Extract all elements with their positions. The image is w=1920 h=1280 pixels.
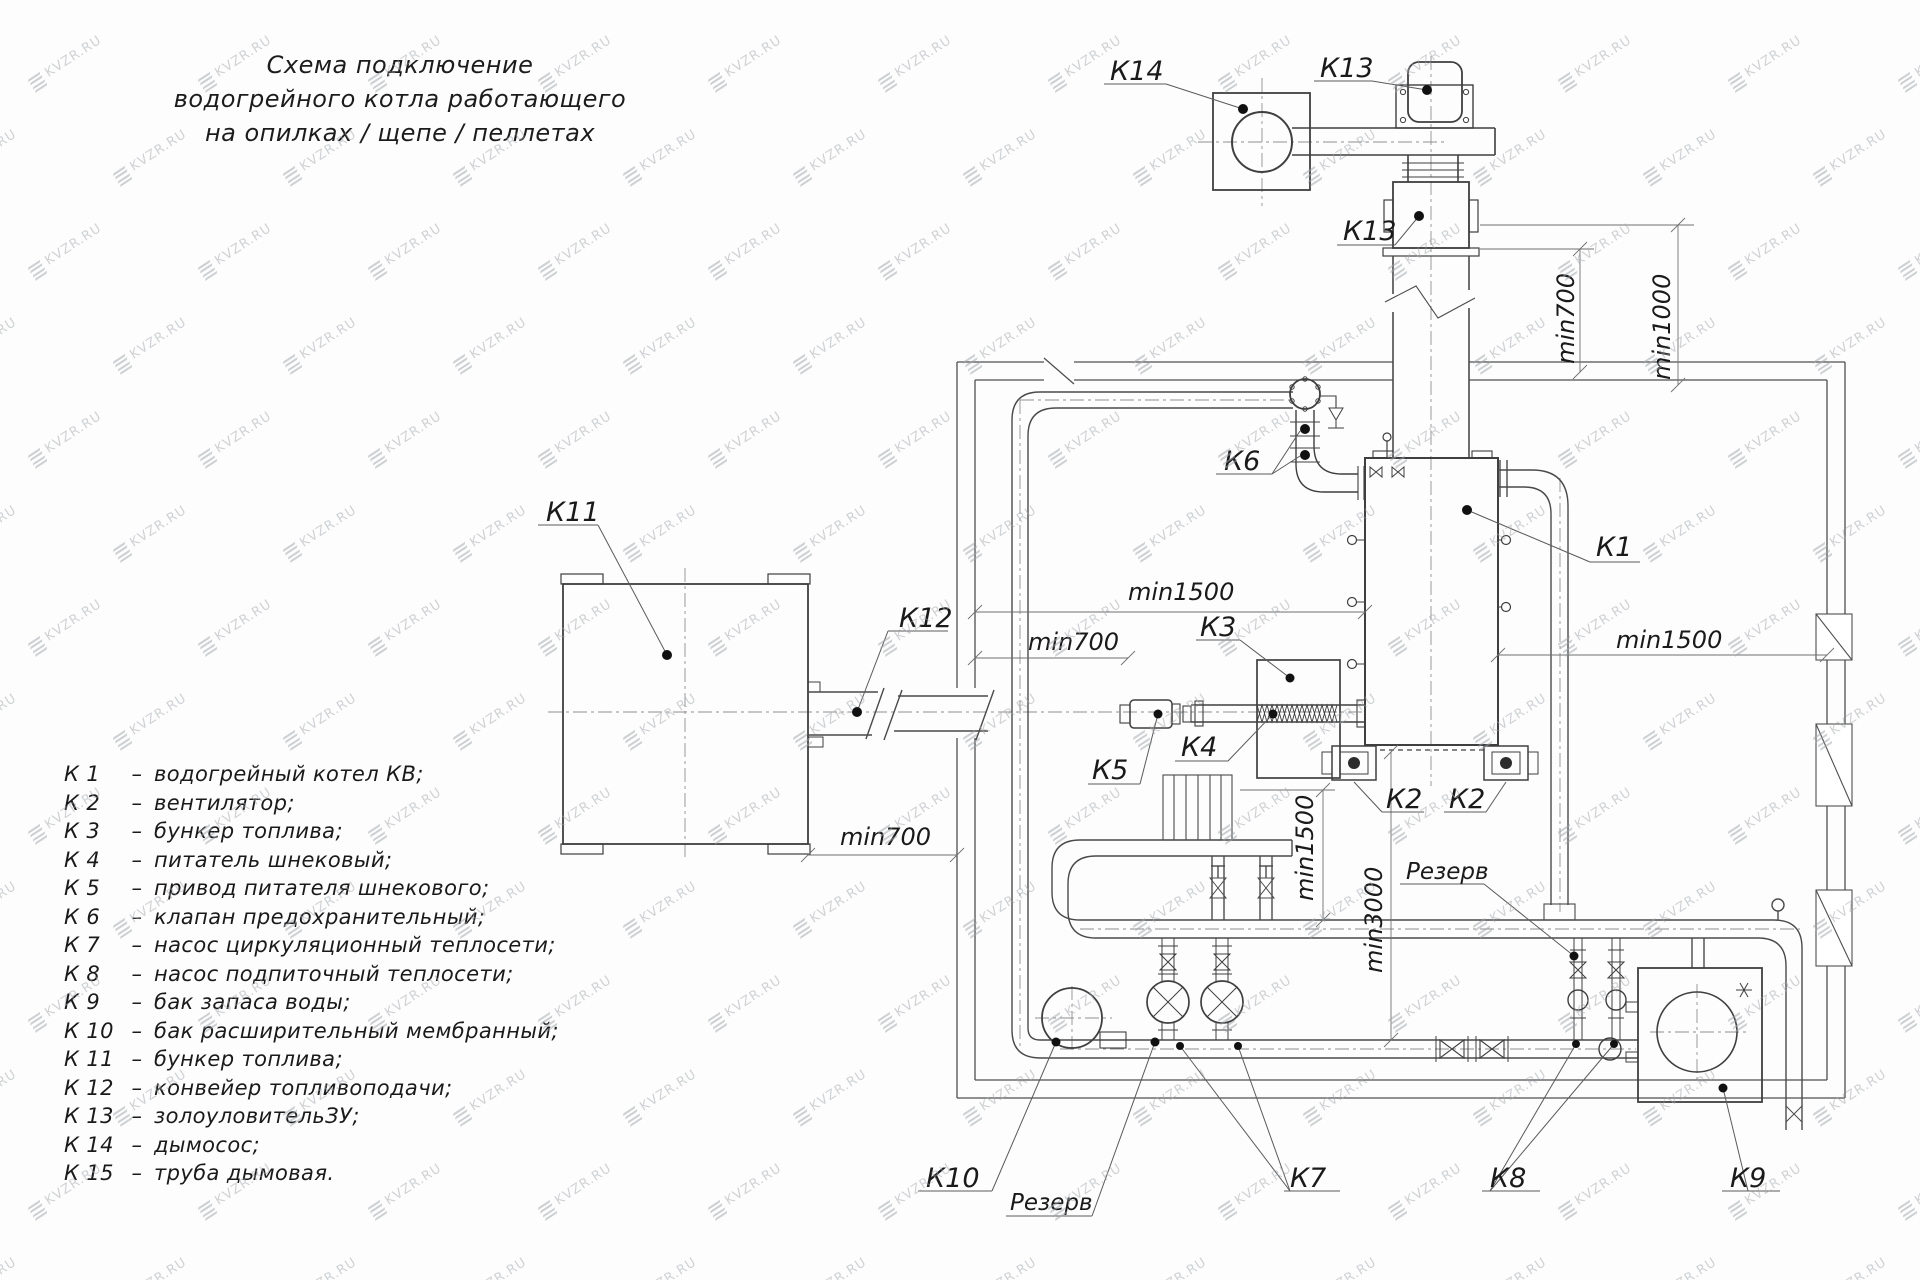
legend-key: К 5 <box>64 876 120 900</box>
legend-key: К 3 <box>64 819 120 843</box>
legend-dash: – <box>120 990 154 1014</box>
legend-desc: привод питателя шнекового; <box>154 876 489 900</box>
legend-desc: насос циркуляционный теплосети; <box>154 933 556 957</box>
legend-key: К 7 <box>64 933 120 957</box>
legend-item-k3: К 3–бункер топлива; <box>64 819 559 848</box>
legend-dash: – <box>120 1161 154 1185</box>
label-k14: К14 <box>1110 56 1164 87</box>
legend-item-k10: К 10–бак расширительный мембранный; <box>64 1019 559 1048</box>
dim-min1000-roof: min1000 <box>1648 274 1676 380</box>
legend-item-k8: К 8–насос подпиточный теплосети; <box>64 962 559 991</box>
screw-feeder-k4 <box>1191 700 1365 727</box>
legend-item-k9: К 9–бак запаса воды; <box>64 990 559 1019</box>
heating-pipes <box>1012 392 1802 1130</box>
legend-item-k13: К 13–золоуловительЗУ; <box>64 1104 559 1133</box>
legend: К 1–водогрейный котел КВ; К 2–вентилятор… <box>64 762 559 1190</box>
legend-key: К 12 <box>64 1076 120 1100</box>
legend-desc: клапан предохранительный; <box>154 905 485 929</box>
wall-openings <box>1816 614 1852 966</box>
drawing-sheet: Схема подключение водогрейного котла раб… <box>0 0 1920 1280</box>
legend-dash: – <box>120 933 154 957</box>
legend-key: К 2 <box>64 791 120 815</box>
legend-desc: дымосос; <box>154 1133 260 1157</box>
legend-item-k7: К 7–насос циркуляционный теплосети; <box>64 933 559 962</box>
dim-min700-left: min700 <box>1028 628 1119 656</box>
legend-desc: питатель шнековый; <box>154 848 392 872</box>
label-k9: К9 <box>1730 1163 1766 1194</box>
label-k6: К6 <box>1224 446 1260 477</box>
dim-min3000: min3000 <box>1360 867 1388 973</box>
legend-desc: насос подпиточный теплосети; <box>154 962 514 986</box>
label-k10: К10 <box>926 1163 980 1194</box>
fuel-bunker-k11 <box>561 574 823 854</box>
leader-lines <box>538 81 1780 1216</box>
legend-dash: – <box>120 1019 154 1043</box>
conveyor-k12 <box>808 688 994 740</box>
legend-desc: труба дымовая. <box>154 1161 334 1185</box>
legend-key: К 8 <box>64 962 120 986</box>
legend-key: К 11 <box>64 1047 120 1071</box>
legend-desc: бак расширительный мембранный; <box>154 1019 559 1043</box>
legend-key: К 13 <box>64 1104 120 1128</box>
legend-dash: – <box>120 876 154 900</box>
legend-item-k4: К 4–питатель шнековый; <box>64 848 559 877</box>
legend-key: К 4 <box>64 848 120 872</box>
legend-key: К 15 <box>64 1161 120 1185</box>
legend-item-k12: К 12–конвейер топливоподачи; <box>64 1076 559 1105</box>
legend-dash: – <box>120 762 154 786</box>
dim-min1500-right: min1500 <box>1616 626 1722 654</box>
legend-dash: – <box>120 848 154 872</box>
label-k13-top: К13 <box>1320 53 1374 84</box>
legend-key: К 10 <box>64 1019 120 1043</box>
legend-desc: бак запаса воды; <box>154 990 351 1014</box>
legend-key: К 6 <box>64 905 120 929</box>
label-k1: К1 <box>1596 532 1632 563</box>
drawing-title: Схема подключение водогрейного котла раб… <box>150 48 650 150</box>
label-k8: К8 <box>1490 1163 1526 1194</box>
legend-dash: – <box>120 791 154 815</box>
legend-dash: – <box>120 1076 154 1100</box>
label-k5: К5 <box>1092 755 1128 786</box>
dim-min700-bunker: min700 <box>840 823 931 851</box>
fan-k2-left <box>1322 746 1376 780</box>
stairs <box>1163 775 1232 840</box>
label-k4: К4 <box>1181 732 1217 763</box>
legend-dash: – <box>120 905 154 929</box>
legend-dash: – <box>120 962 154 986</box>
label-k7: К7 <box>1290 1163 1326 1194</box>
label-rezerv-left: Резерв <box>1010 1190 1093 1216</box>
legend-item-k15: К 15–труба дымовая. <box>64 1161 559 1190</box>
smoke-exhauster-k14 <box>1213 93 1495 190</box>
safety-valve-k6 <box>1290 377 1364 500</box>
legend-item-k1: К 1–водогрейный котел КВ; <box>64 762 559 791</box>
legend-dash: – <box>120 1104 154 1128</box>
title-line-1: Схема подключение <box>150 48 650 82</box>
legend-desc: бункер топлива; <box>154 1047 343 1071</box>
dim-min700-roof: min700 <box>1552 273 1580 364</box>
dim-min1500-left: min1500 <box>1128 578 1234 606</box>
title-line-3: на опилках / щепе / пеллетах <box>150 116 650 150</box>
legend-desc: вентилятор; <box>154 791 295 815</box>
legend-item-k11: К 11–бункер топлива; <box>64 1047 559 1076</box>
legend-key: К 14 <box>64 1133 120 1157</box>
legend-desc: водогрейный котел КВ; <box>154 762 424 786</box>
fan-k2-right <box>1484 746 1538 780</box>
legend-item-k14: К 14–дымосос; <box>64 1133 559 1162</box>
legend-desc: конвейер топливоподачи; <box>154 1076 453 1100</box>
boiler-k1 <box>1348 433 1511 750</box>
dim-min1500-mid: min1500 <box>1291 795 1319 901</box>
legend-desc: бункер топлива; <box>154 819 343 843</box>
label-k12: К12 <box>899 603 953 634</box>
legend-key: К 1 <box>64 762 120 786</box>
legend-dash: – <box>120 819 154 843</box>
legend-item-k2: К 2–вентилятор; <box>64 791 559 820</box>
legend-dash: – <box>120 1133 154 1157</box>
chimney-k15 <box>1385 256 1475 458</box>
label-k13-mid: К13 <box>1343 216 1397 247</box>
legend-dash: – <box>120 1047 154 1071</box>
legend-item-k5: К 5–привод питателя шнекового; <box>64 876 559 905</box>
label-k2-left: К2 <box>1386 784 1422 815</box>
legend-item-k6: К 6–клапан предохранительный; <box>64 905 559 934</box>
centerlines <box>548 56 1800 1082</box>
label-rezerv-right: Резерв <box>1406 859 1489 885</box>
legend-desc: золоуловительЗУ; <box>154 1104 360 1128</box>
label-k11: К11 <box>546 497 600 528</box>
storage-tank-k9 <box>1626 968 1762 1102</box>
circulation-pumps-k7 <box>1147 938 1243 1040</box>
title-line-2: водогрейного котла работающего <box>150 82 650 116</box>
label-k2-right: К2 <box>1449 784 1485 815</box>
label-k3: К3 <box>1200 612 1236 643</box>
legend-key: К 9 <box>64 990 120 1014</box>
flue-motor-k13 <box>1396 62 1473 182</box>
dimension-labels: min1500 min700 min700 min1500 min1500 mi… <box>840 273 1722 973</box>
